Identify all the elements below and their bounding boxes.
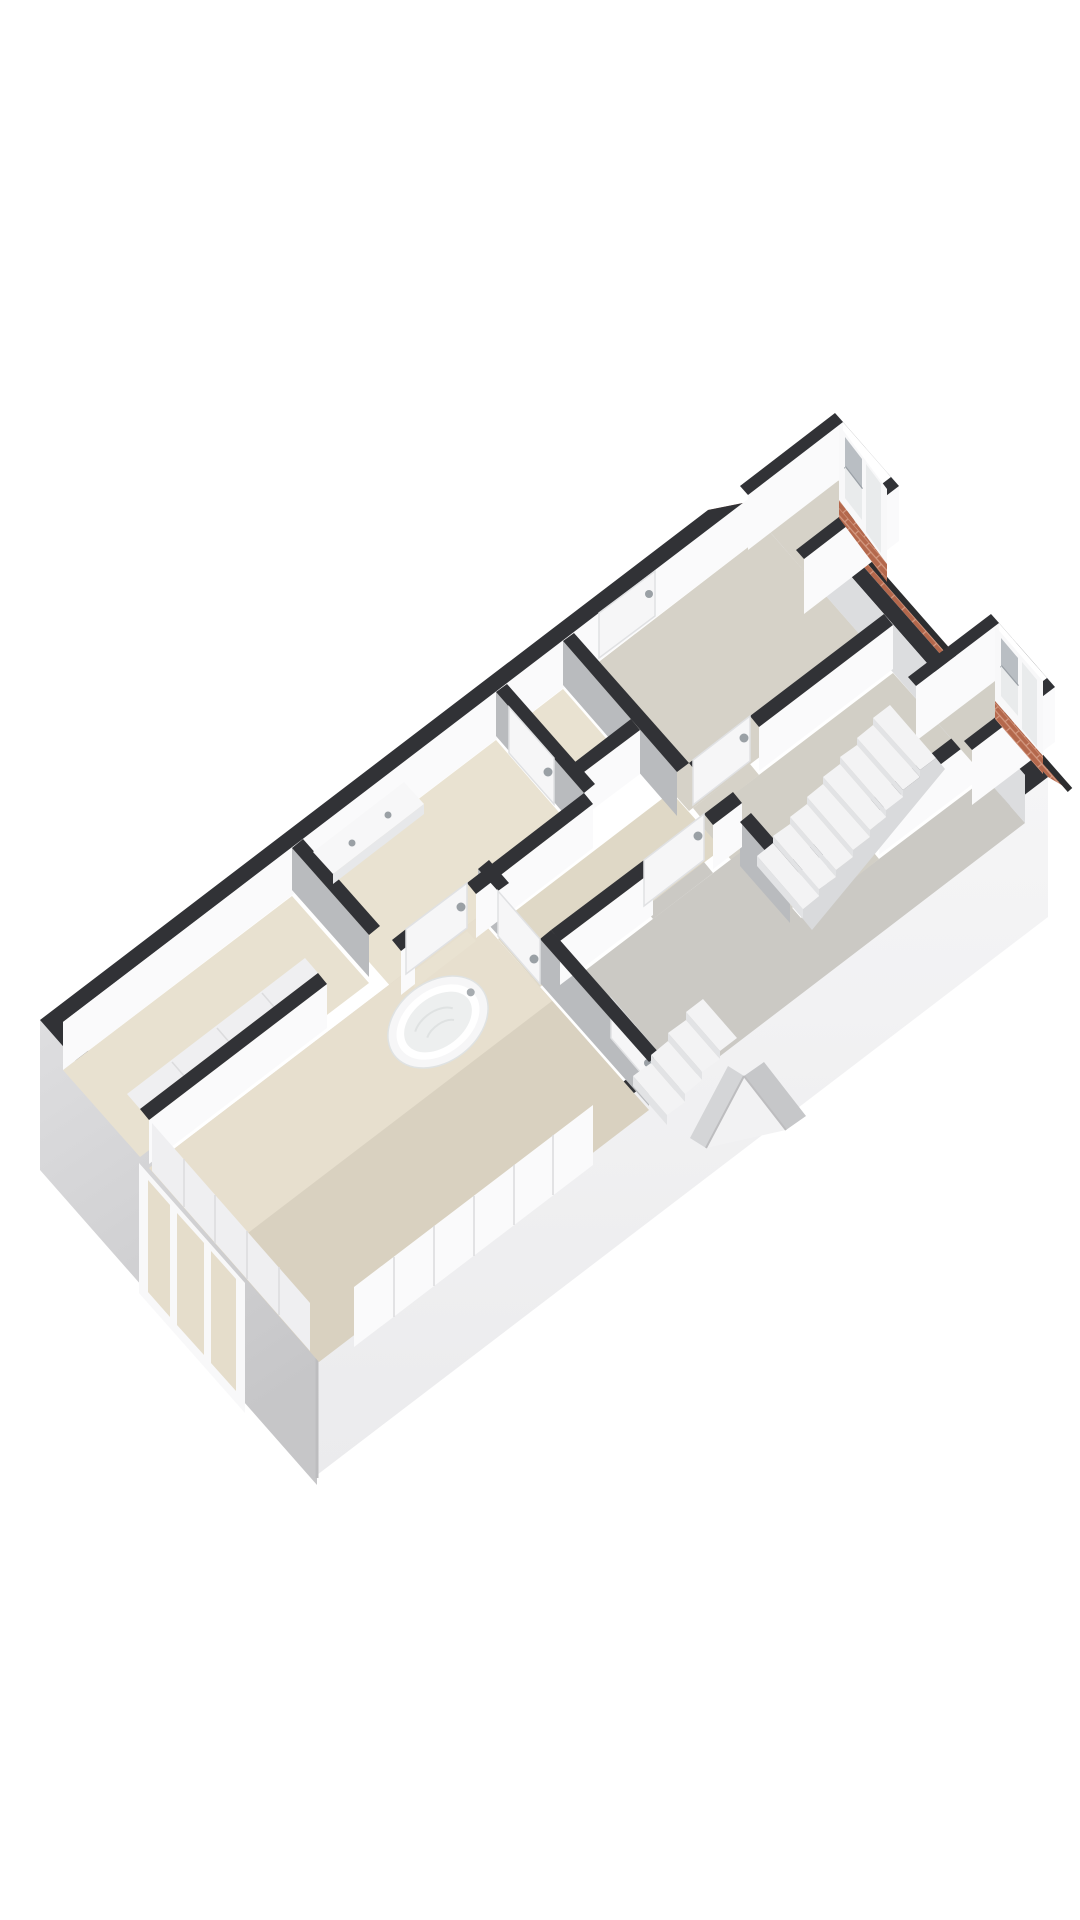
tap-icon <box>349 840 356 847</box>
door-knob-icon <box>530 955 539 964</box>
floor-plan-3d <box>0 0 1080 1920</box>
page <box>0 0 1080 1920</box>
door-knob-icon <box>645 590 653 598</box>
tap-icon <box>385 812 392 819</box>
door-knob-icon <box>694 832 703 841</box>
door-knob-icon <box>544 768 553 777</box>
door-knob-icon <box>457 903 466 912</box>
door-knob-icon <box>740 734 749 743</box>
